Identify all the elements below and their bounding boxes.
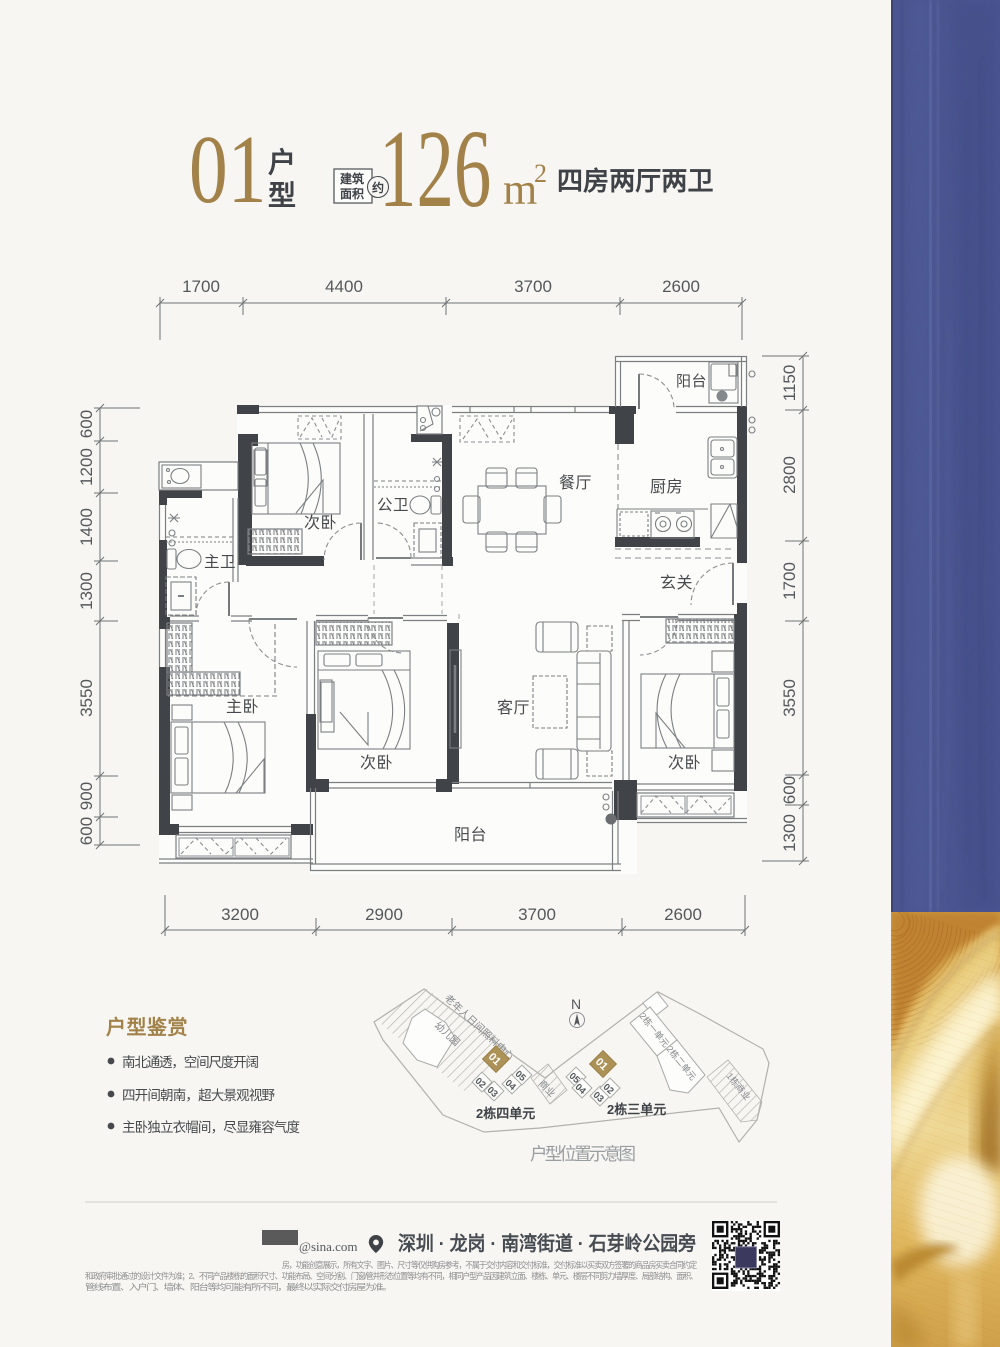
svg-text:@sina.com: @sina.com	[299, 1239, 358, 1254]
svg-text:户型鉴赏: 户型鉴赏	[106, 1015, 189, 1039]
svg-text:1200: 1200	[77, 448, 96, 486]
svg-text:3700: 3700	[518, 905, 556, 924]
svg-text:2栋四单元: 2栋四单元	[476, 1106, 535, 1121]
svg-text:客厅: 客厅	[497, 699, 530, 717]
svg-text:次卧: 次卧	[304, 514, 337, 532]
svg-text:3700: 3700	[514, 277, 552, 296]
svg-text:建筑: 建筑	[339, 171, 364, 186]
svg-text:600: 600	[77, 410, 96, 438]
svg-text:玄关: 玄关	[660, 574, 693, 592]
svg-text:1400: 1400	[77, 508, 96, 546]
svg-text:户型位置示意图: 户型位置示意图	[530, 1144, 637, 1164]
svg-text:4400: 4400	[325, 277, 363, 296]
svg-text:2800: 2800	[780, 456, 799, 494]
svg-text:次卧: 次卧	[360, 754, 393, 772]
svg-text:1700: 1700	[780, 562, 799, 600]
svg-text:阳台: 阳台	[676, 373, 707, 390]
svg-text:N: N	[571, 996, 581, 1012]
svg-text:600: 600	[77, 817, 96, 845]
svg-text:1300: 1300	[77, 572, 96, 610]
svg-text:四房两厅两卫: 四房两厅两卫	[557, 166, 714, 196]
svg-text:主卫: 主卫	[204, 553, 236, 571]
svg-text:房，功能创意展示，所有文字、图片、尺寸等仅供购房参考，不属于: 房，功能创意展示，所有文字、图片、尺寸等仅供购房参考，不属于交付内容和交付标准，…	[282, 1260, 698, 1270]
svg-text:01: 01	[189, 115, 266, 224]
svg-text:型: 型	[268, 180, 296, 211]
svg-text:深圳 · 龙岗 · 南湾街道 · 石芽岭公园旁: 深圳 · 龙岗 · 南湾街道 · 石芽岭公园旁	[398, 1232, 696, 1255]
svg-text:1150: 1150	[780, 365, 799, 402]
svg-text:2900: 2900	[365, 905, 403, 924]
svg-text:600: 600	[780, 776, 799, 804]
svg-text:3200: 3200	[221, 905, 259, 924]
svg-text:户: 户	[268, 146, 296, 178]
svg-text:厨房: 厨房	[650, 478, 683, 496]
svg-text:次卧: 次卧	[668, 754, 701, 772]
svg-text:900: 900	[77, 782, 96, 810]
svg-text:主卧独立衣帽间，尽显雍容气度: 主卧独立衣帽间，尽显雍容气度	[122, 1119, 300, 1135]
svg-text:2栋三单元: 2栋三单元	[607, 1102, 666, 1117]
svg-text:和政府审批通过的设计文件为准；2、不同产品楼栋的面积尺寸、功: 和政府审批通过的设计文件为准；2、不同产品楼栋的面积尺寸、功能布局、空间分割、门…	[85, 1271, 697, 1281]
svg-text:管线布置、入户门、墙体、阳台等均可能有所不同，最终以实际交付: 管线布置、入户门、墙体、阳台等均可能有所不同，最终以实际交付房屋为准。	[85, 1282, 391, 1292]
svg-text:m: m	[503, 165, 537, 214]
svg-text:四开间朝南，超大景观视野: 四开间朝南，超大景观视野	[122, 1088, 276, 1103]
svg-text:1700: 1700	[182, 277, 220, 296]
svg-text:餐厅: 餐厅	[559, 474, 592, 492]
svg-text:2: 2	[534, 159, 547, 188]
svg-text:2600: 2600	[662, 277, 700, 296]
svg-text:阳台: 阳台	[454, 826, 487, 844]
svg-text:1300: 1300	[780, 814, 799, 852]
svg-text:126: 126	[379, 109, 491, 231]
svg-text:南北通透，空间尺度开阔: 南北通透，空间尺度开阔	[122, 1055, 259, 1070]
svg-text:3550: 3550	[780, 679, 799, 717]
svg-text:公卫: 公卫	[377, 497, 409, 514]
svg-text:2600: 2600	[664, 905, 702, 924]
svg-text:主卧: 主卧	[226, 698, 259, 716]
svg-text:3550: 3550	[77, 679, 96, 717]
svg-text:面积: 面积	[340, 186, 364, 201]
